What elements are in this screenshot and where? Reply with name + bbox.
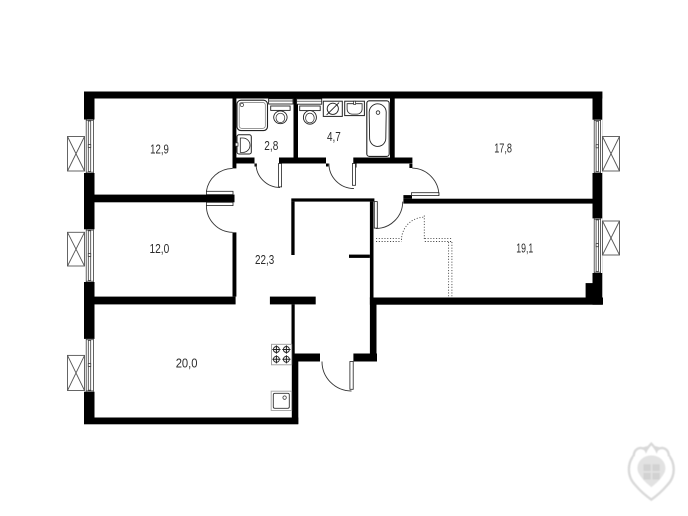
svg-text:12,0: 12,0 bbox=[150, 241, 170, 256]
svg-text:12,9: 12,9 bbox=[150, 141, 169, 156]
svg-text:20,0: 20,0 bbox=[176, 355, 198, 370]
svg-text:19,1: 19,1 bbox=[516, 240, 533, 255]
svg-text:22,3: 22,3 bbox=[255, 252, 274, 267]
svg-text:4,7: 4,7 bbox=[327, 129, 341, 144]
svg-text:2,8: 2,8 bbox=[264, 138, 278, 153]
svg-text:17,8: 17,8 bbox=[494, 141, 512, 156]
